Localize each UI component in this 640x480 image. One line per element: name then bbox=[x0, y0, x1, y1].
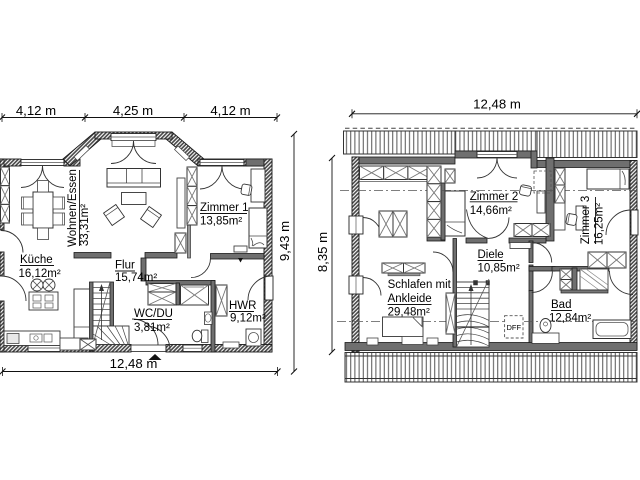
svg-text:Schlafen mit: Schlafen mit bbox=[388, 279, 452, 291]
svg-text:4,12 m: 4,12 m bbox=[210, 103, 250, 118]
svg-text:8,35 m: 8,35 m bbox=[315, 232, 330, 272]
svg-text:33,31m²: 33,31m² bbox=[79, 204, 91, 246]
svg-text:15,74m²: 15,74m² bbox=[115, 272, 157, 284]
svg-text:16,12m²: 16,12m² bbox=[19, 268, 61, 280]
svg-text:Wohnen/Essen: Wohnen/Essen bbox=[67, 169, 79, 247]
svg-text:12,48 m: 12,48 m bbox=[473, 97, 521, 112]
svg-text:Flur: Flur bbox=[115, 260, 135, 272]
svg-text:3,81m²: 3,81m² bbox=[134, 322, 170, 334]
svg-text:10,85m²: 10,85m² bbox=[478, 263, 520, 275]
svg-text:Diele: Diele bbox=[478, 249, 504, 261]
svg-text:14,66m²: 14,66m² bbox=[470, 205, 512, 217]
svg-text:12,84m²: 12,84m² bbox=[549, 313, 591, 325]
svg-text:12,48 m: 12,48 m bbox=[110, 356, 158, 371]
svg-text:16,25m²: 16,25m² bbox=[594, 203, 606, 245]
svg-text:WC/DU: WC/DU bbox=[134, 308, 173, 320]
svg-text:29,48m²: 29,48m² bbox=[388, 307, 430, 319]
svg-text:9,43 m: 9,43 m bbox=[277, 221, 292, 261]
svg-text:9,12m²: 9,12m² bbox=[230, 313, 266, 325]
svg-text:Zimmer 1: Zimmer 1 bbox=[200, 202, 249, 214]
svg-text:Zimmer 3: Zimmer 3 bbox=[580, 196, 592, 245]
svg-text:DFF: DFF bbox=[507, 323, 522, 332]
svg-text:Ankleide: Ankleide bbox=[388, 293, 432, 305]
svg-text:Bad: Bad bbox=[551, 299, 571, 311]
svg-text:4,12 m: 4,12 m bbox=[16, 103, 56, 118]
svg-text:4,25 m: 4,25 m bbox=[113, 103, 153, 118]
svg-text:Zimmer 2: Zimmer 2 bbox=[470, 191, 519, 203]
svg-text:13,85m²: 13,85m² bbox=[200, 216, 242, 228]
svg-text:Küche: Küche bbox=[20, 254, 53, 266]
svg-text:HWR: HWR bbox=[229, 300, 256, 312]
